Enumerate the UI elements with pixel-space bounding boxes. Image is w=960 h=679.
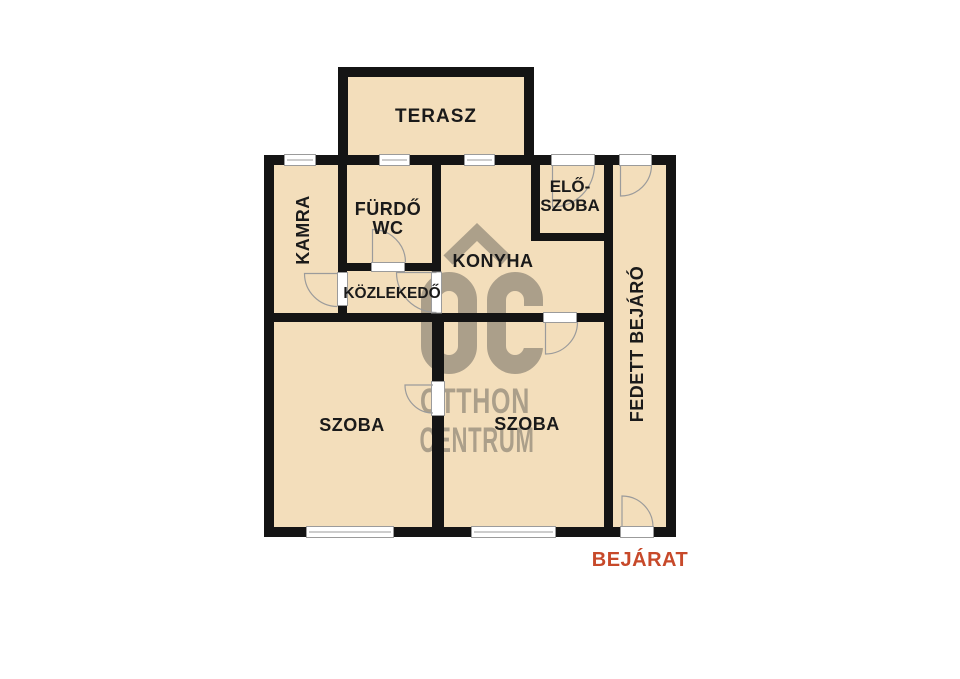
room-label-fedett-bejaro: FEDETT BEJÁRÓ <box>626 266 647 423</box>
room-label-terasz: TERASZ <box>395 106 477 127</box>
door-opening-konyha-szoba <box>544 313 577 323</box>
wall-terasz-left <box>338 67 348 165</box>
wall-outer-right <box>666 155 676 537</box>
wall-outer-left <box>264 155 274 537</box>
door-opening-eloszoba <box>552 155 595 166</box>
room-label-eloszoba-line1: ELŐ- <box>550 177 591 196</box>
room-label-eloszoba-line2: SZOBA <box>540 196 600 215</box>
room-label-furdo-line1: FÜRDŐ <box>355 198 422 219</box>
wall-terasz-top <box>338 67 534 77</box>
wall-terasz-right <box>524 67 534 165</box>
wall-eloszoba-bottom <box>531 233 613 241</box>
room-label-szoba-jobb: SZOBA <box>494 414 560 434</box>
wall-fedett-bejaro-left <box>604 165 613 527</box>
room-label-kozlekedo: KÖZLEKEDŐ <box>343 284 440 302</box>
room-label-furdo-line2: WC <box>373 218 404 238</box>
room-label-konyha: KONYHA <box>452 251 533 271</box>
room-label-szoba-bal: SZOBA <box>319 415 385 435</box>
wall-eloszoba-left <box>531 165 540 241</box>
door-opening-fedett-top <box>620 155 652 166</box>
door-opening-bejarat <box>621 527 654 538</box>
entrance-label: BEJÁRAT <box>592 548 688 571</box>
floorplan-canvas: OTTHON CENTRUM <box>0 0 960 679</box>
wall-szoba-middle <box>432 322 444 527</box>
door-opening-szoba-szoba <box>432 382 445 416</box>
floorplan-drawing: OTTHON CENTRUM <box>0 0 960 679</box>
room-label-kamra: KAMRA <box>293 195 313 265</box>
door-opening-furdo <box>372 263 405 272</box>
wall-furdo-konyha <box>432 165 441 272</box>
